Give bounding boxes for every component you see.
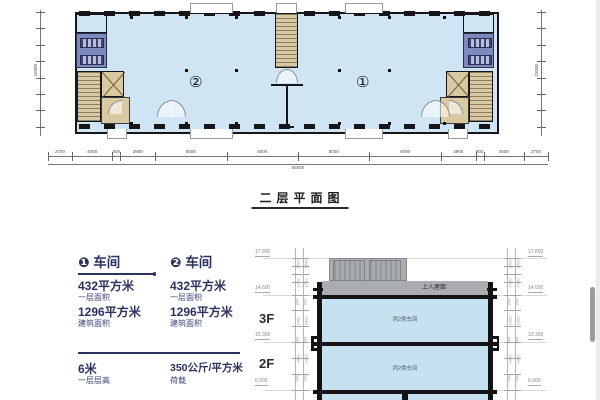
column-dot xyxy=(443,16,446,19)
dim-tick xyxy=(155,152,156,161)
dim-value: 8000 xyxy=(329,150,339,155)
dim-tick xyxy=(300,295,309,296)
dim-tick xyxy=(537,28,546,29)
dim-value: 3900 xyxy=(133,150,143,155)
stack-dim-value: 900 xyxy=(515,299,519,306)
column-dot xyxy=(338,16,341,19)
stack-dim-value: 3400 xyxy=(296,355,300,364)
dim-value: 8000 xyxy=(257,150,267,155)
column-dot xyxy=(185,69,188,72)
dim-tick xyxy=(227,152,228,161)
dim-tick xyxy=(300,274,309,275)
stack-dim-value: 1700 xyxy=(304,279,308,288)
dim-tick xyxy=(36,110,45,111)
dim-tick xyxy=(537,12,546,13)
dim-tick xyxy=(369,152,370,161)
dim-tick xyxy=(72,152,73,161)
stack-dim-value: 3400 xyxy=(516,355,520,364)
stack-dim-value: 900 xyxy=(507,299,511,306)
dim-tick xyxy=(36,78,45,79)
dim-tick xyxy=(48,152,49,161)
column-dot xyxy=(443,122,446,125)
dim-tick xyxy=(298,152,299,161)
stack-dim-value: 3400 xyxy=(516,317,520,326)
dim-value: 2700 xyxy=(531,150,541,155)
dim-tick xyxy=(36,28,45,29)
stack-dim-value: 1500 xyxy=(516,260,520,269)
dim-tick xyxy=(441,152,442,161)
column-dot xyxy=(338,69,341,72)
stack-dim-value: 1500 xyxy=(304,260,308,269)
dim-tick xyxy=(36,12,45,13)
stack-dim-value: 1700 xyxy=(516,279,520,288)
column-dot xyxy=(235,16,238,19)
dim-tick xyxy=(537,110,546,111)
dim-value: 2700 xyxy=(55,150,65,155)
stack-dim-value: 900 xyxy=(515,337,519,344)
dim-tick xyxy=(537,78,546,79)
dim-tick xyxy=(512,326,521,327)
dim-tick xyxy=(548,152,549,161)
stack-dim-value: 1700 xyxy=(296,279,300,288)
stack-dim-value: 900 xyxy=(303,375,307,382)
dim-tick xyxy=(537,127,546,128)
dim-tick xyxy=(300,326,309,327)
dim-tick xyxy=(300,258,309,259)
dim-tick xyxy=(512,258,521,259)
column-dot xyxy=(388,122,391,125)
dim-tick xyxy=(537,61,546,62)
dim-tick xyxy=(537,45,546,46)
dim-value: 900 xyxy=(113,150,121,155)
stack-dim-value: 3400 xyxy=(304,355,308,364)
column-dot xyxy=(185,16,188,19)
stack-dim-value: 1500 xyxy=(508,260,512,269)
dim-tick xyxy=(300,310,309,311)
column-dot xyxy=(130,16,133,19)
drawing-viewer: ② ① 二层平面图 150001500027004500900390080008… xyxy=(0,0,600,400)
dim-value: 4500 xyxy=(87,150,97,155)
stack-dim-value: 3400 xyxy=(508,317,512,326)
dim-value: 3900 xyxy=(453,150,463,155)
column-dot xyxy=(235,122,238,125)
dim-value: 8000 xyxy=(186,150,196,155)
scrollbar-track[interactable] xyxy=(596,0,600,400)
dim-tick xyxy=(512,295,521,296)
stack-dim-value: 1500 xyxy=(296,260,300,269)
column-dot xyxy=(338,122,341,125)
stack-dim-value: 900 xyxy=(295,299,299,306)
plan-side-total: 15000 xyxy=(535,64,540,77)
dim-tick xyxy=(512,390,521,391)
dim-tick xyxy=(300,390,309,391)
dim-tick xyxy=(36,94,45,95)
stack-dim-value: 900 xyxy=(303,337,307,344)
dim-tick xyxy=(36,127,45,128)
dim-value: 4500 xyxy=(499,150,509,155)
stack-dim-value: 3400 xyxy=(296,317,300,326)
column-dot xyxy=(235,69,238,72)
column-dot xyxy=(388,69,391,72)
plan-side-total: 15000 xyxy=(34,64,39,77)
scrollbar-thumb[interactable] xyxy=(590,287,595,342)
stack-dim-value: 1700 xyxy=(508,279,512,288)
dim-tick xyxy=(512,310,521,311)
plan-total-value: 56000 xyxy=(292,166,305,171)
stack-dim-value: 900 xyxy=(303,299,307,306)
dim-value: 8000 xyxy=(400,150,410,155)
stack-dim-value: 900 xyxy=(295,337,299,344)
stack-dim-value: 900 xyxy=(507,337,511,344)
stack-dim-value: 900 xyxy=(507,375,511,382)
column-dot xyxy=(185,122,188,125)
stack-dim-value: 900 xyxy=(295,375,299,382)
dim-tick xyxy=(524,152,525,161)
column-dot xyxy=(130,122,133,125)
plan-dimension-layer: 1500015000270045009003900800080008000800… xyxy=(0,0,600,230)
dim-tick xyxy=(512,274,521,275)
stack-dim-value: 3400 xyxy=(304,317,308,326)
stack-dim-value: 900 xyxy=(515,375,519,382)
stack-dim-value: 3400 xyxy=(508,355,512,364)
dim-tick xyxy=(537,94,546,95)
section-dimension-layer: 1500150017001700900900340034009009003400… xyxy=(0,230,600,400)
dim-tick xyxy=(36,45,45,46)
column-dot xyxy=(388,16,391,19)
dim-value: 900 xyxy=(476,150,484,155)
dim-tick xyxy=(36,61,45,62)
